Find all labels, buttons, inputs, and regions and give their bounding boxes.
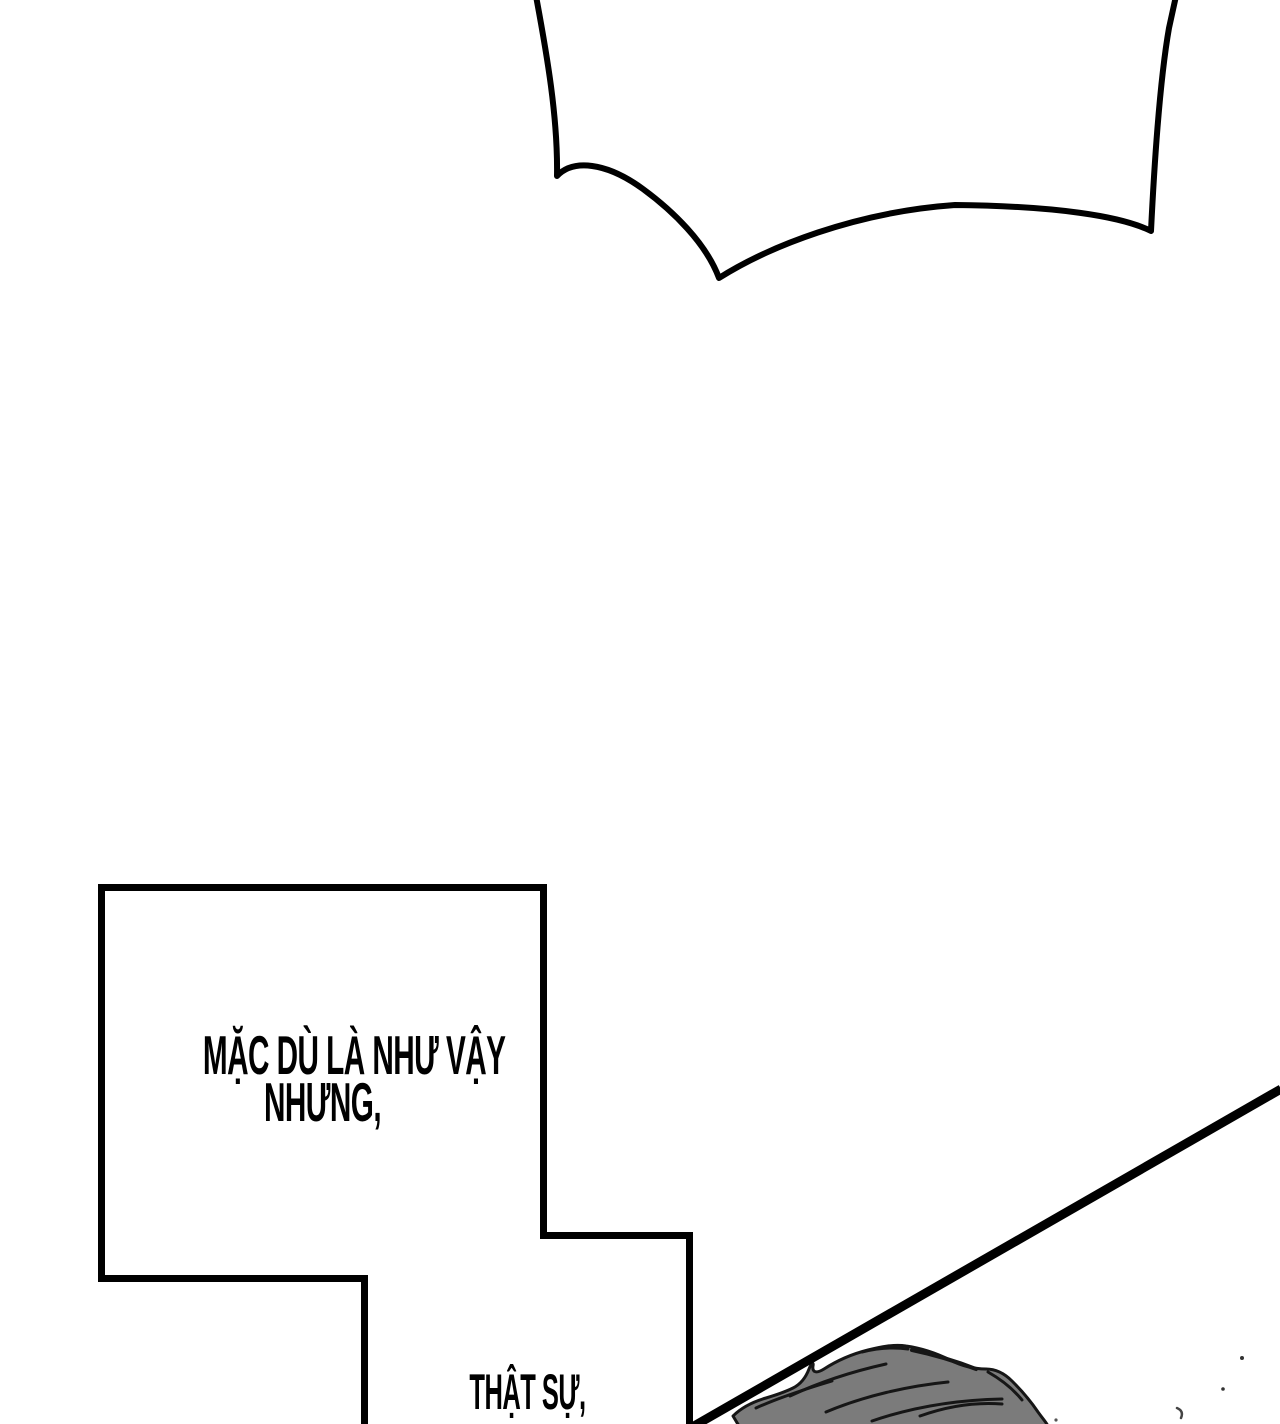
panel-border xyxy=(102,888,690,1424)
bottom-caption: THẬT SỰ, xyxy=(365,1367,690,1417)
speech-bubble-outline xyxy=(536,0,1176,278)
bottom-caption-text: THẬT SỰ, xyxy=(445,1367,611,1417)
hair xyxy=(733,1345,1048,1424)
hair-silhouette xyxy=(733,1345,1048,1424)
ink-speck xyxy=(1240,1356,1244,1360)
comic-page: MẶC DÙ LÀ NHƯ VẬY NHƯNG, THẬT SỰ, xyxy=(0,0,1280,1424)
ink-speck xyxy=(1177,1408,1182,1418)
panel-caption-text: MẶC DÙ LÀ NHƯ VẬY NHƯNG, xyxy=(203,1032,442,1126)
caption-line-2: NHƯNG, xyxy=(203,1079,442,1126)
comic-artwork xyxy=(0,0,1280,1424)
ink-speck xyxy=(1221,1387,1225,1391)
ink-specks xyxy=(1054,1356,1244,1422)
caption-line-3: THẬT SỰ, xyxy=(445,1367,611,1417)
ink-speck xyxy=(1054,1418,1057,1421)
panel-caption: MẶC DÙ LÀ NHƯ VẬY NHƯNG, xyxy=(101,1032,544,1126)
